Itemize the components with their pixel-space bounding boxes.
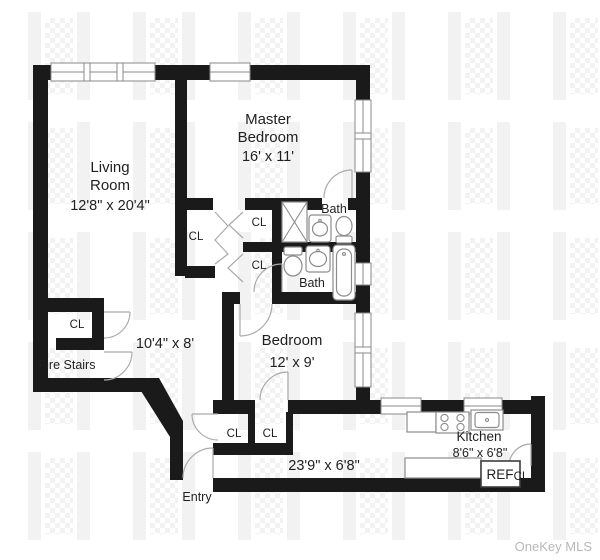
floorplan-drawing: Living Room 12'8" x 20'4" Master Bedroom… [0,0,600,560]
window-master-right [355,100,371,172]
living-room-label-2: Room [90,177,130,194]
fire-stairs-label: Fire Stairs [39,358,96,372]
bath-top-label: Bath [321,202,347,216]
kitchen-counter-bottom [405,458,481,478]
wall-bedroom-bottom-a [213,400,255,414]
window-top-right [210,63,250,81]
sink-bath-bottom [306,246,330,272]
sink-bath-top [309,215,331,242]
toilet-bath-top [336,217,352,244]
window-bedroom-right [355,313,371,387]
bath-bottom-fixtures [284,245,355,300]
bifold-closet-top [229,212,243,238]
wall-living-right [175,80,187,276]
wall-left [33,65,48,392]
kitchen-label: Kitchen [456,429,501,444]
wall-cl1-top [183,198,213,210]
wall-bath-north-b [348,198,356,210]
door-entry [183,448,213,478]
kitchen-counter-top [407,412,436,432]
master-bedroom-label-1: Master [245,111,291,128]
door-firestairs [104,352,132,380]
bedroom-dims: 12' x 9' [269,355,314,371]
toilet-bath-bottom [284,247,302,276]
master-bedroom-dims: 16' x 11' [242,149,294,165]
window-top-left [51,63,155,81]
closet-label-bedroom-left: CL [227,428,242,440]
wall-bedroom-left [222,292,234,414]
closet-label-kitchen: CL [514,471,529,483]
living-room-dims: 12'8" x 20'4" [70,198,150,214]
living-room-label-1: Living [90,159,129,176]
bath-bottom-label: Bath [299,276,325,290]
door-hall-closet-lower [192,414,218,440]
floorplan-canvas: Living Room 12'8" x 20'4" Master Bedroom… [0,0,600,560]
bifold-hall-closet [215,212,228,264]
wall-kitchen-right [531,396,545,492]
closet-label-bedroom-right: CL [263,428,278,440]
hall-upper-dims: 10'4" x 8' [136,336,194,352]
master-bedroom-label-2: Bedroom [238,129,299,146]
wall-firestairs-cl [56,338,104,350]
brand-watermark: OneKey MLS [515,539,592,554]
door-master-bath [324,170,352,198]
wall-firestairs-bottom [33,378,143,392]
kitchen-sink [471,410,503,430]
wall-closet-divider-1 [248,412,255,455]
door-bedroom-closet [260,372,288,400]
shower-stall [282,202,307,242]
wall-entry-vertical [170,428,183,480]
wall-bedroom-bottom-b [288,400,356,414]
bathtub [333,245,355,300]
entry-label: Entry [182,490,212,504]
kitchen-dims: 8'6" x 6'8" [453,446,508,460]
closet-label-firestairs: CL [70,319,85,331]
refrigerator-label: REF [487,467,514,482]
hall-lower-dims: 23'9" x 6'8" [288,458,359,474]
closet-label-top: CL [252,217,267,229]
bedroom-label: Bedroom [262,332,323,349]
bifold-closet-bottom [228,254,243,282]
window-bath-right [355,263,371,285]
closet-label-bottom: CL [252,260,267,272]
wall-cl1-bottom [185,266,215,278]
door-firestairs-closet [104,312,130,338]
wall-closet-divider-2 [286,412,293,455]
closet-label-hall: CL [189,231,204,243]
